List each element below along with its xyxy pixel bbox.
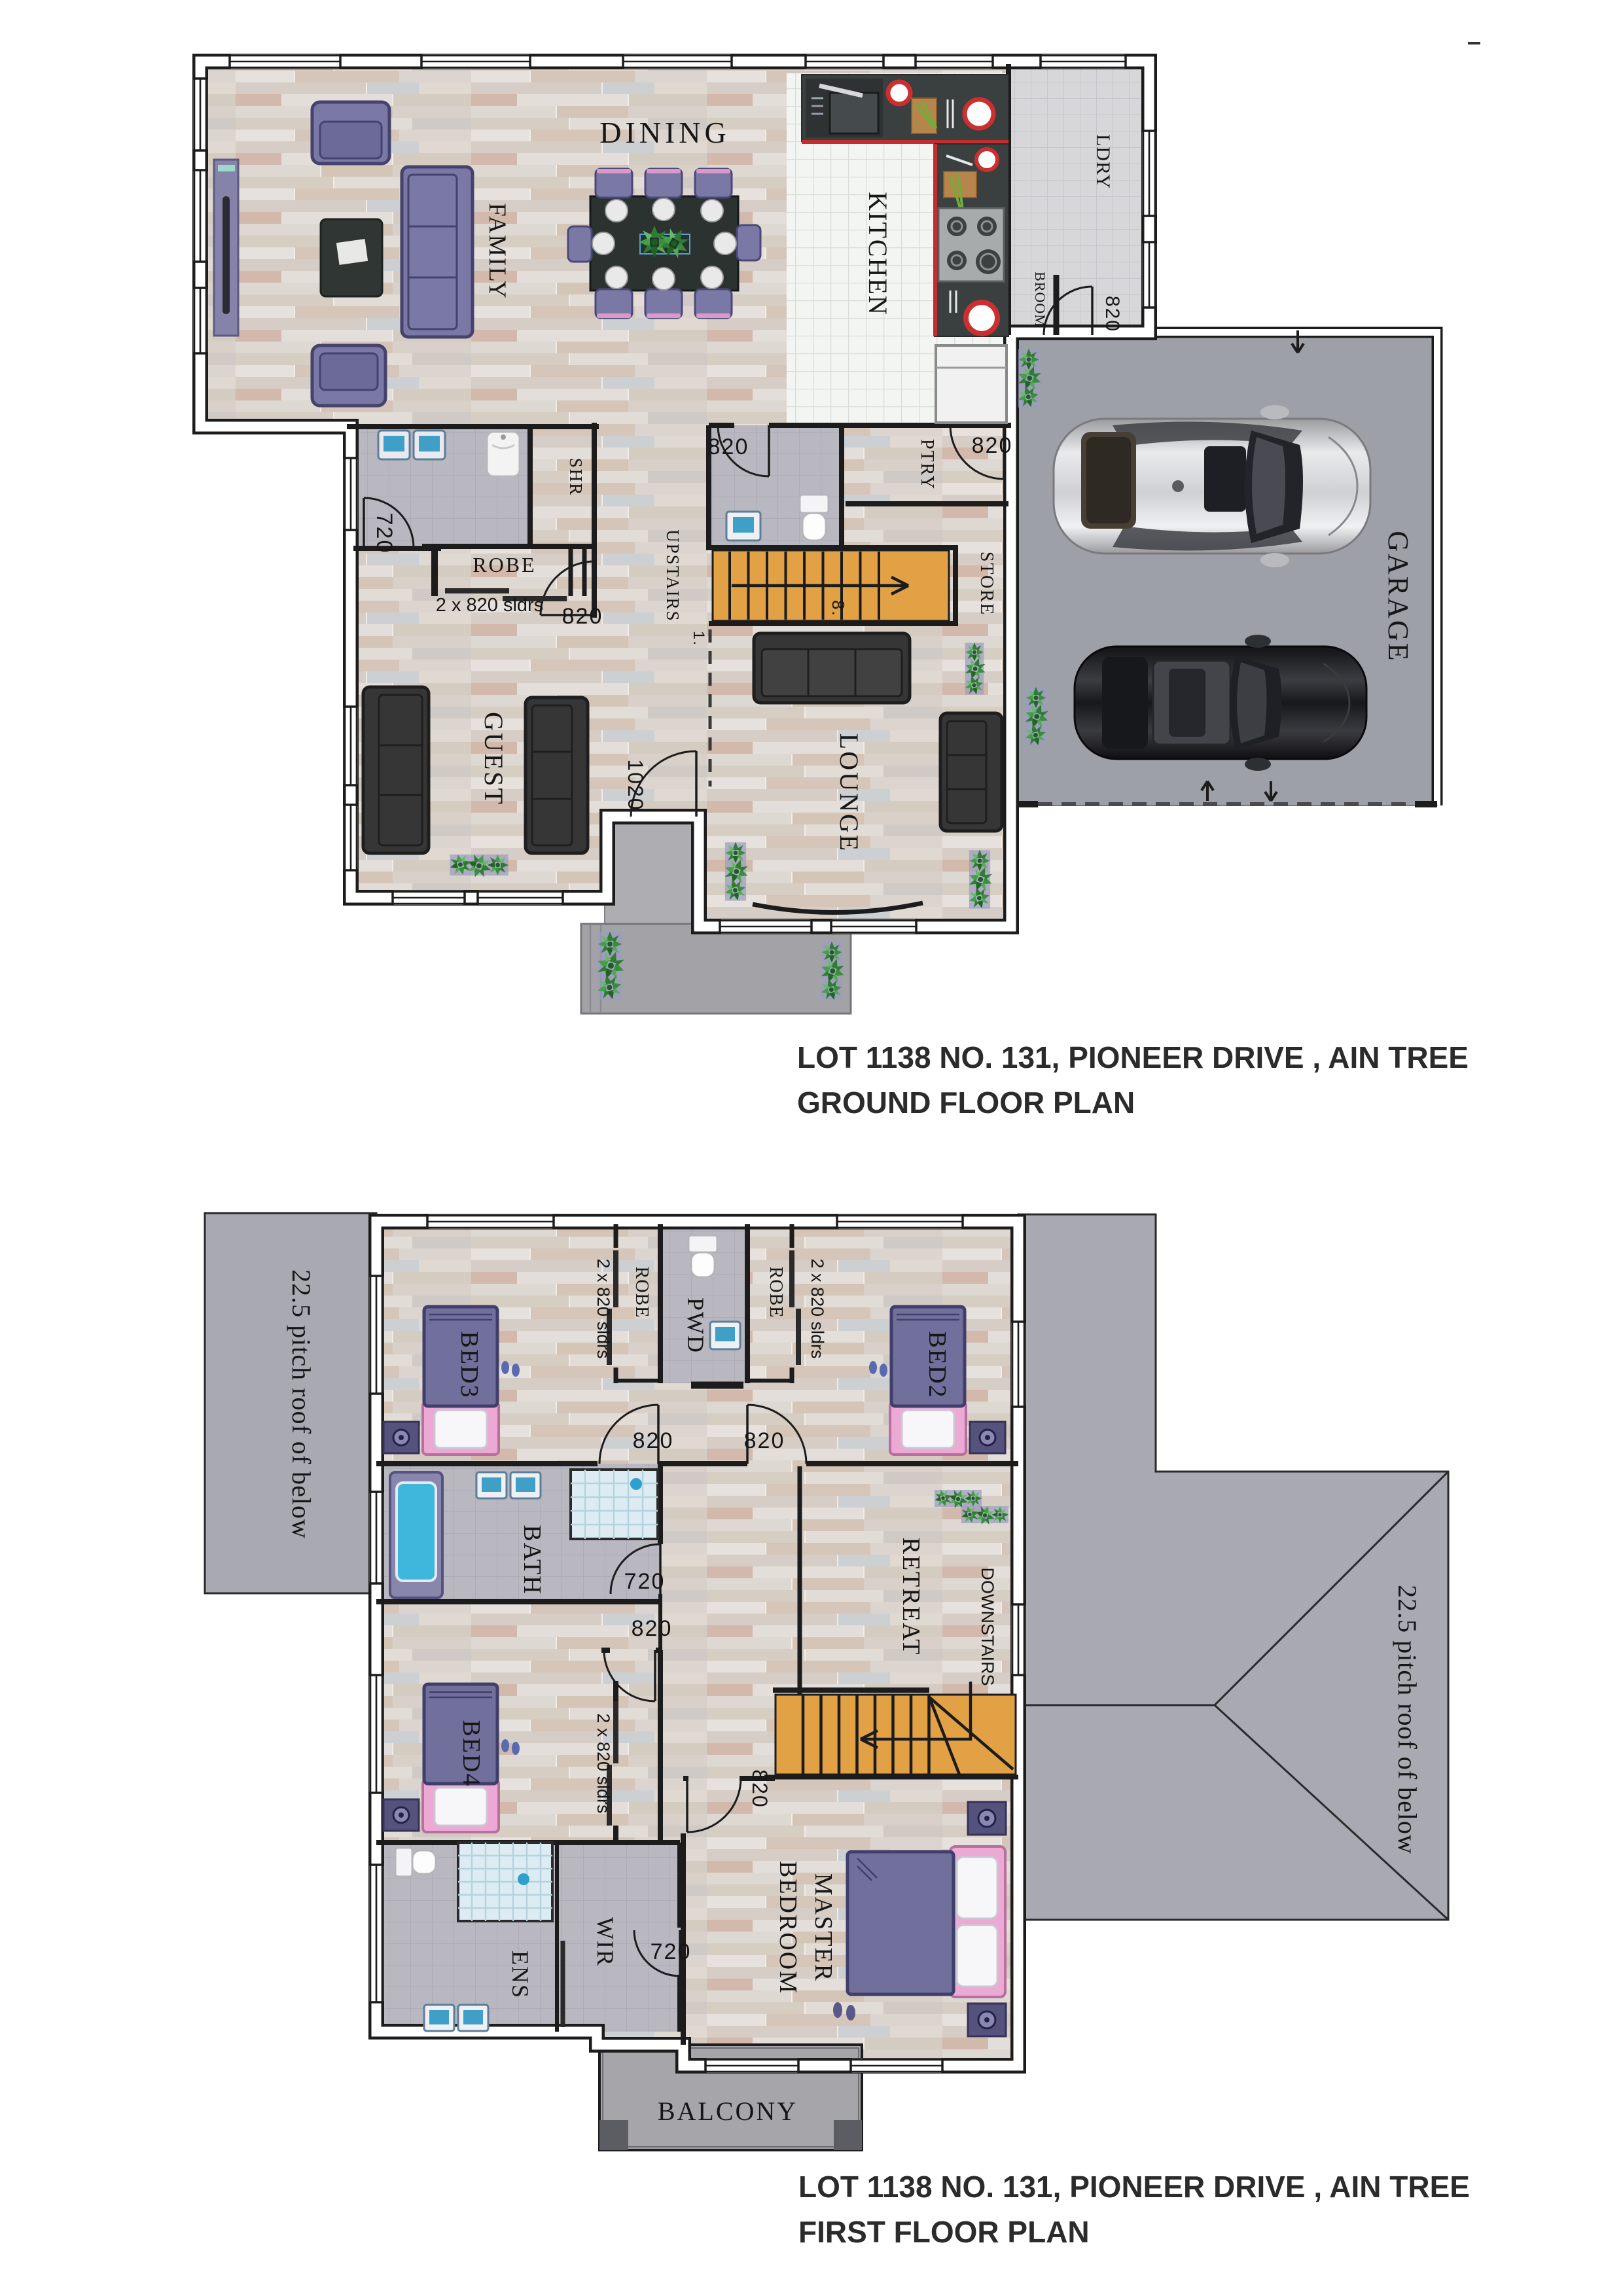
svg-text:22.5 pitch roof of below: 22.5 pitch roof of below <box>287 1269 316 1539</box>
svg-text:FAMILY: FAMILY <box>484 203 510 299</box>
svg-text:2 x 820 sldrs: 2 x 820 sldrs <box>594 1713 613 1813</box>
svg-text:LDRY: LDRY <box>1092 134 1114 189</box>
svg-text:UPSTAIRS: UPSTAIRS <box>663 529 683 622</box>
svg-text:GROUND FLOOR PLAN: GROUND FLOOR PLAN <box>797 1086 1135 1120</box>
svg-text:720: 720 <box>372 513 397 554</box>
svg-text:ENS: ENS <box>507 1951 533 1999</box>
svg-text:SHR: SHR <box>566 458 586 497</box>
svg-text:BEDROOM: BEDROOM <box>774 1861 802 1994</box>
svg-text:FIRST FLOOR PLAN: FIRST FLOOR PLAN <box>798 2215 1090 2249</box>
svg-text:BROOM: BROOM <box>1032 272 1048 328</box>
svg-text:MASTER: MASTER <box>810 1873 837 1982</box>
svg-text:ROBE: ROBE <box>632 1267 652 1318</box>
svg-text:DINING: DINING <box>599 116 730 149</box>
svg-text:820: 820 <box>748 1769 772 1808</box>
svg-text:BED4: BED4 <box>457 1720 485 1788</box>
svg-text:PWD: PWD <box>683 1298 709 1354</box>
svg-text:22.5 pitch roof of below: 22.5 pitch roof of below <box>1393 1585 1422 1854</box>
svg-text:8.: 8. <box>829 600 848 617</box>
svg-text:LOT 1138 NO. 131, PIONEER DRIV: LOT 1138 NO. 131, PIONEER DRIVE , AIN TR… <box>798 2170 1470 2204</box>
svg-text:KITCHEN: KITCHEN <box>863 192 893 316</box>
svg-text:DOWNSTAIRS: DOWNSTAIRS <box>978 1568 997 1686</box>
svg-text:BALCONY: BALCONY <box>658 2096 798 2126</box>
svg-text:720: 720 <box>651 1939 692 1964</box>
svg-text:ROBE: ROBE <box>766 1267 786 1318</box>
svg-text:1020: 1020 <box>624 759 647 811</box>
svg-text:WIR: WIR <box>592 1917 618 1967</box>
svg-text:720: 720 <box>624 1569 666 1594</box>
svg-text:820: 820 <box>744 1428 785 1453</box>
svg-text:2 x 820 sldrs: 2 x 820 sldrs <box>808 1258 827 1358</box>
svg-text:RETREAT: RETREAT <box>897 1538 925 1656</box>
svg-text:BED3: BED3 <box>455 1332 483 1399</box>
svg-text:LOUNGE: LOUNGE <box>834 733 864 853</box>
svg-text:GUEST: GUEST <box>479 712 508 806</box>
svg-text:GARAGE: GARAGE <box>1382 531 1414 662</box>
svg-text:LOT 1138 NO. 131, PIONEER DRIV: LOT 1138 NO. 131, PIONEER DRIVE , AIN TR… <box>797 1040 1469 1074</box>
svg-text:2 x 820 sldrs: 2 x 820 sldrs <box>594 1258 613 1358</box>
svg-text:820: 820 <box>562 604 603 629</box>
svg-text:STORE: STORE <box>976 552 997 616</box>
svg-text:1.: 1. <box>690 631 707 646</box>
svg-text:PTRY: PTRY <box>917 439 937 490</box>
svg-text:BATH: BATH <box>518 1525 546 1595</box>
svg-text:820: 820 <box>1101 296 1123 332</box>
svg-text:820: 820 <box>632 1616 673 1641</box>
svg-text:ROBE: ROBE <box>473 553 536 576</box>
svg-text:2 x 820 sldrs: 2 x 820 sldrs <box>436 595 543 616</box>
svg-text:820: 820 <box>972 433 1013 458</box>
svg-text:820: 820 <box>708 434 749 459</box>
svg-text:820: 820 <box>633 1428 674 1453</box>
svg-text:BED2: BED2 <box>923 1332 951 1399</box>
